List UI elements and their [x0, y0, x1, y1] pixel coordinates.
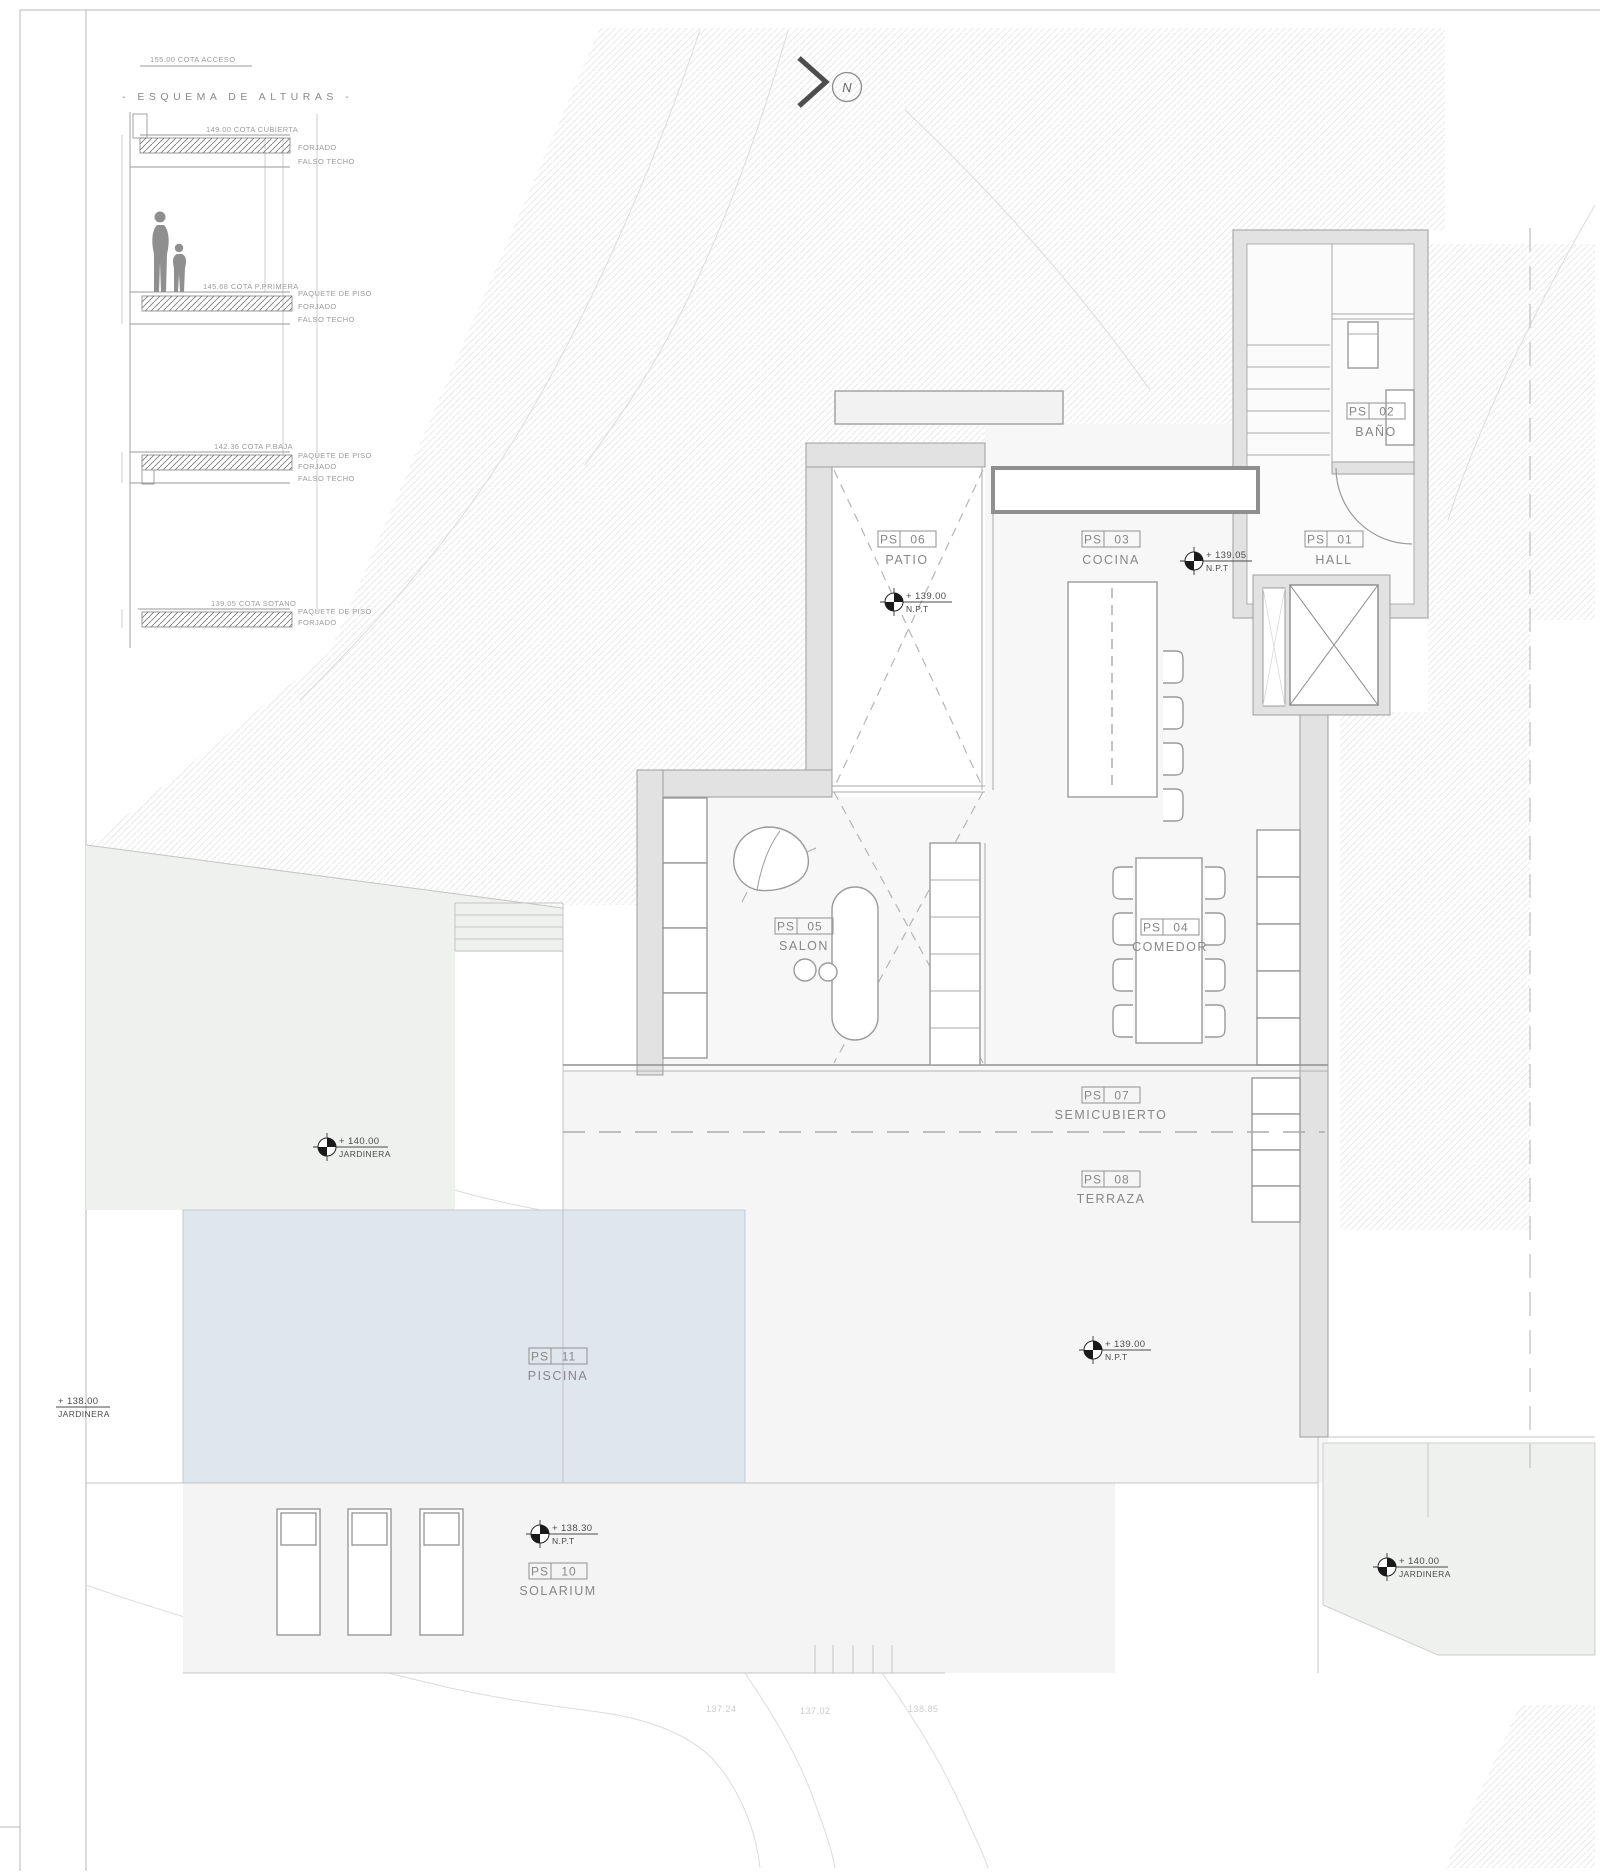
contour-label-2: 137.02 [800, 1706, 831, 1716]
svg-text:N.P.T: N.P.T [1105, 1352, 1128, 1362]
svg-text:FORJADO: FORJADO [298, 462, 337, 471]
svg-text:COMEDOR: COMEDOR [1132, 940, 1208, 954]
planter-upper [835, 391, 1063, 424]
stool [1163, 789, 1183, 821]
kitchen-counter [993, 468, 1258, 512]
svg-text:COCINA: COCINA [1082, 553, 1140, 567]
esquema-level-sotano: 139.05 COTA SOTANO PAQUETE DE PISO FORJA… [138, 599, 372, 627]
svg-text:PS: PS [531, 1350, 549, 1364]
elevator-shaft [1253, 575, 1390, 715]
svg-text:N.P.T: N.P.T [1206, 563, 1229, 573]
svg-text:SALON: SALON [779, 939, 829, 953]
svg-text:PS: PS [531, 1565, 549, 1579]
svg-text:PAQUETE DE PISO: PAQUETE DE PISO [298, 607, 372, 616]
svg-text:FALSO TECHO: FALSO TECHO [298, 315, 355, 324]
dining-chair [1113, 959, 1133, 991]
svg-text:PS: PS [1084, 1089, 1102, 1103]
esquema-level-primera: 145.68 COTA P.PRIMERA PAQUETE DE PISO FO… [130, 282, 372, 324]
svg-text:FALSO TECHO: FALSO TECHO [298, 157, 355, 166]
sofa [930, 843, 985, 1065]
svg-text:+ 138.30: + 138.30 [552, 1523, 592, 1534]
stool [1163, 651, 1183, 683]
svg-text:149.00 COTA CUBIERTA: 149.00 COTA CUBIERTA [206, 125, 298, 134]
patio-void [832, 467, 982, 790]
svg-text:+ 139.05: + 139.05 [1206, 550, 1246, 561]
svg-text:FORJADO: FORJADO [298, 618, 337, 627]
wall-salon-left [637, 770, 663, 1075]
svg-text:PS: PS [880, 533, 898, 547]
svg-text:PS: PS [1143, 921, 1161, 935]
svg-text:N.P.T: N.P.T [906, 604, 929, 614]
dining-chair [1113, 913, 1133, 945]
svg-text:PS: PS [1307, 533, 1325, 547]
svg-text:JARDINERA: JARDINERA [58, 1409, 110, 1419]
svg-text:08: 08 [1114, 1173, 1129, 1187]
svg-text:03: 03 [1114, 533, 1129, 547]
jardinera-bottom-right-area [1323, 1443, 1595, 1655]
svg-text:SEMICUBIERTO: SEMICUBIERTO [1055, 1108, 1168, 1122]
svg-text:N.P.T: N.P.T [552, 1536, 575, 1546]
esquema-level-baja: 142.36 COTA P.BAJA PAQUETE DE PISO FORJA… [130, 442, 372, 484]
svg-text:145.68 COTA P.PRIMERA: 145.68 COTA P.PRIMERA [203, 282, 299, 291]
svg-text:PS: PS [1349, 405, 1367, 419]
dining-chair [1205, 867, 1225, 899]
svg-text:+ 140.00: + 140.00 [1399, 1556, 1439, 1567]
svg-text:HALL: HALL [1315, 553, 1352, 567]
chaise [832, 887, 878, 1040]
side-table [794, 959, 816, 981]
dining-chair [1113, 1005, 1133, 1037]
svg-text:11: 11 [562, 1350, 576, 1364]
svg-text:PAQUETE DE PISO: PAQUETE DE PISO [298, 451, 372, 460]
svg-text:+ 140.00: + 140.00 [339, 1136, 379, 1147]
svg-text:+ 139.00: + 139.00 [1105, 1339, 1145, 1350]
stool [1163, 743, 1183, 775]
wall-patio-top [806, 443, 985, 467]
contour-label-3: 138.85 [908, 1704, 939, 1714]
wall-salon-top [637, 770, 832, 797]
svg-text:02: 02 [1379, 405, 1394, 419]
svg-text:FORJADO: FORJADO [298, 143, 337, 152]
north-label: N [842, 80, 852, 95]
salon-shelving [663, 798, 707, 1058]
esquema-title: - ESQUEMA DE ALTURAS - [122, 91, 353, 103]
stool [1163, 697, 1183, 729]
svg-text:04: 04 [1173, 921, 1188, 935]
svg-text:139.05 COTA SOTANO: 139.05 COTA SOTANO [211, 599, 296, 608]
scale-figures [152, 212, 186, 293]
pool-area [183, 1210, 745, 1483]
solarium-area [183, 1483, 1115, 1673]
wall-patio-left [806, 443, 832, 790]
svg-text:142.36 COTA P.BAJA: 142.36 COTA P.BAJA [214, 442, 293, 451]
wall-right [1300, 712, 1328, 1437]
level-marker-jardinera-west: + 138.00 JARDINERA [56, 1396, 110, 1419]
svg-text:05: 05 [807, 920, 822, 934]
svg-text:PISCINA: PISCINA [528, 1369, 589, 1383]
svg-text:JARDINERA: JARDINERA [1399, 1569, 1451, 1579]
svg-text:BAÑO: BAÑO [1355, 425, 1396, 439]
svg-text:06: 06 [910, 533, 925, 547]
dining-chair [1205, 913, 1225, 945]
svg-text:+ 139.00: + 139.00 [906, 591, 946, 602]
svg-text:01: 01 [1337, 533, 1352, 547]
svg-text:PS: PS [1084, 533, 1102, 547]
sun-loungers [277, 1509, 463, 1635]
svg-text:07: 07 [1114, 1089, 1129, 1103]
cota-acceso-label: 155.00 COTA ACCESO [150, 55, 235, 64]
contour-label-1: 137.24 [706, 1704, 737, 1714]
side-table [819, 963, 837, 981]
svg-text:TERRAZA: TERRAZA [1077, 1192, 1146, 1206]
dining-chair [1113, 867, 1133, 899]
svg-text:FORJADO: FORJADO [298, 302, 337, 311]
esquema-de-alturas: 155.00 COTA ACCESO - ESQUEMA DE ALTURAS … [122, 55, 372, 648]
svg-text:SOLARIUM: SOLARIUM [519, 1584, 596, 1598]
dining-chair [1205, 959, 1225, 991]
dining-chair [1205, 1005, 1225, 1037]
svg-text:PS: PS [1084, 1173, 1102, 1187]
esquema-level-cubierta: 149.00 COTA CUBIERTA FORJADO FALSO TECHO [130, 125, 355, 167]
svg-text:PS: PS [777, 920, 795, 934]
architectural-plan-sheet: 137.24 137.02 138.85 N 155.00 COTA ACCES… [0, 0, 1600, 1871]
svg-text:+ 138.00: + 138.00 [58, 1396, 98, 1407]
svg-text:FALSO TECHO: FALSO TECHO [298, 474, 355, 483]
wall-shelving [1252, 830, 1300, 1222]
svg-text:JARDINERA: JARDINERA [339, 1149, 391, 1159]
svg-text:PAQUETE DE PISO: PAQUETE DE PISO [298, 289, 372, 298]
svg-text:PATIO: PATIO [885, 553, 928, 567]
svg-text:10: 10 [561, 1565, 576, 1579]
